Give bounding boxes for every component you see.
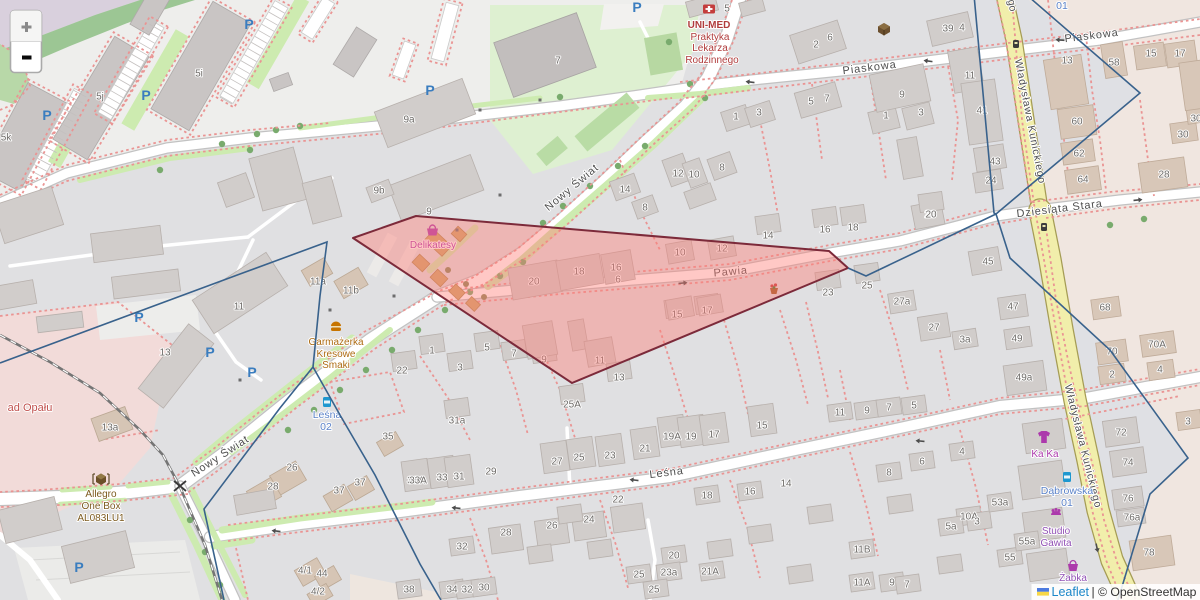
svg-text:25: 25	[861, 281, 873, 292]
svg-text:25: 25	[573, 453, 585, 464]
svg-text:18: 18	[701, 491, 713, 502]
svg-text:Dąbrowska: Dąbrowska	[1041, 485, 1094, 497]
svg-text:34: 34	[446, 585, 458, 596]
svg-text:8: 8	[642, 203, 648, 214]
svg-text:9: 9	[864, 406, 870, 417]
svg-text:5: 5	[911, 401, 917, 412]
svg-text:14: 14	[762, 231, 774, 242]
svg-text:41: 41	[976, 106, 988, 117]
svg-text:37: 37	[354, 478, 366, 489]
svg-text:AL083LU1: AL083LU1	[77, 513, 125, 524]
svg-text:02: 02	[320, 421, 332, 433]
svg-text:55a: 55a	[1019, 537, 1036, 548]
svg-text:28: 28	[500, 528, 512, 539]
svg-text:P: P	[42, 107, 51, 123]
svg-text:13a: 13a	[102, 423, 119, 434]
svg-text:ad Opału: ad Opału	[8, 402, 53, 414]
svg-text:37: 37	[333, 486, 345, 497]
svg-text:1: 1	[733, 112, 739, 123]
svg-text:62: 62	[1073, 149, 1085, 160]
svg-text:3: 3	[974, 517, 980, 528]
svg-text:11B: 11B	[853, 545, 870, 556]
svg-text:49: 49	[1011, 334, 1023, 345]
svg-text:11b: 11b	[343, 286, 359, 297]
svg-text:P: P	[74, 559, 83, 575]
svg-text:15: 15	[1145, 49, 1157, 60]
svg-text:20: 20	[668, 551, 680, 562]
svg-text:33: 33	[436, 473, 448, 484]
svg-text:74: 74	[1122, 458, 1134, 469]
svg-text:18: 18	[847, 223, 859, 234]
svg-text:11: 11	[965, 71, 976, 82]
svg-text:5: 5	[724, 4, 730, 15]
svg-text:P: P	[247, 364, 256, 380]
svg-text:One Box: One Box	[82, 501, 121, 512]
svg-text:23: 23	[822, 288, 834, 299]
svg-text:64: 64	[1077, 175, 1089, 186]
svg-text:13: 13	[1061, 56, 1073, 67]
svg-text:25: 25	[633, 570, 645, 581]
svg-text:Gawita: Gawita	[1040, 538, 1072, 549]
svg-text:26: 26	[546, 521, 558, 532]
svg-text:30: 30	[1177, 130, 1189, 141]
svg-text:22: 22	[612, 495, 624, 506]
svg-text:9: 9	[899, 90, 905, 101]
svg-text:Garmażerka: Garmażerka	[308, 337, 363, 348]
svg-text:78: 78	[1143, 548, 1155, 559]
svg-text:17: 17	[708, 430, 720, 441]
svg-text:| © OpenStreetMap: | © OpenStreetMap	[1092, 585, 1197, 599]
svg-text:35: 35	[382, 432, 394, 443]
svg-text:6: 6	[827, 33, 833, 44]
svg-text:Ka Ka: Ka Ka	[1031, 449, 1059, 460]
svg-text:9: 9	[426, 207, 432, 218]
svg-text:4/1: 4/1	[298, 566, 312, 577]
svg-text:31: 31	[453, 472, 465, 483]
svg-text:9b: 9b	[373, 186, 385, 197]
svg-text:19A: 19A	[663, 432, 681, 443]
svg-text:UNI-MED: UNI-MED	[688, 20, 731, 31]
svg-text:28: 28	[267, 482, 279, 493]
svg-text:14: 14	[619, 185, 631, 196]
svg-text:5i: 5i	[195, 69, 203, 80]
svg-text:47: 47	[1007, 302, 1019, 313]
svg-text:24: 24	[583, 515, 595, 526]
svg-text:27: 27	[928, 323, 940, 334]
svg-text:16: 16	[819, 225, 831, 236]
svg-text:P: P	[141, 87, 150, 103]
svg-text:44: 44	[316, 569, 328, 580]
svg-text:38: 38	[403, 585, 415, 596]
svg-text:3: 3	[1185, 417, 1191, 428]
svg-text:20: 20	[925, 210, 937, 221]
svg-text:2: 2	[1109, 370, 1115, 381]
svg-text:39: 39	[942, 24, 954, 35]
svg-text:Leaflet: Leaflet	[1052, 585, 1090, 599]
svg-text:76: 76	[1122, 494, 1134, 505]
svg-text:01: 01	[1056, 0, 1068, 12]
svg-text:28: 28	[1158, 170, 1170, 181]
svg-text:7: 7	[824, 94, 830, 105]
svg-text:33A: 33A	[409, 476, 427, 487]
svg-text:Allegro: Allegro	[85, 489, 117, 500]
svg-text:Praktyka: Praktyka	[691, 32, 730, 43]
svg-text:P: P	[425, 82, 434, 98]
svg-text:01: 01	[1061, 497, 1073, 509]
svg-text:5j: 5j	[96, 92, 104, 103]
svg-text:45: 45	[982, 257, 994, 268]
svg-text:27a: 27a	[894, 297, 911, 308]
svg-text:4: 4	[959, 447, 965, 458]
svg-text:Smaki: Smaki	[322, 360, 350, 371]
svg-text:4/2: 4/2	[311, 587, 325, 598]
svg-text:1: 1	[883, 111, 889, 122]
svg-text:30: 30	[1190, 114, 1200, 125]
svg-text:76a: 76a	[1124, 513, 1141, 524]
svg-text:P: P	[244, 16, 253, 32]
svg-text:Kresowe: Kresowe	[317, 349, 356, 360]
svg-text:30: 30	[478, 583, 490, 594]
svg-text:21A: 21A	[701, 567, 719, 578]
svg-text:72: 72	[1115, 428, 1127, 439]
svg-text:7: 7	[555, 56, 561, 67]
svg-text:32: 32	[461, 585, 473, 596]
svg-text:8: 8	[886, 468, 892, 479]
svg-text:P: P	[205, 344, 214, 360]
svg-text:4: 4	[1157, 365, 1163, 376]
svg-text:11A: 11A	[853, 578, 870, 589]
svg-text:3: 3	[756, 108, 762, 119]
svg-text:25A: 25A	[563, 400, 581, 411]
svg-text:27: 27	[551, 457, 563, 468]
svg-text:13: 13	[159, 348, 171, 359]
svg-text:P: P	[632, 0, 641, 15]
svg-text:9: 9	[889, 578, 895, 589]
svg-text:9a: 9a	[403, 115, 415, 126]
svg-text:7: 7	[904, 580, 910, 591]
svg-text:5k: 5k	[1, 133, 13, 144]
svg-text:32: 32	[456, 542, 468, 553]
svg-text:3: 3	[918, 108, 924, 119]
svg-text:43: 43	[989, 157, 1001, 168]
svg-text:3: 3	[457, 363, 463, 374]
svg-text:Lekarza: Lekarza	[692, 43, 728, 54]
svg-text:3a: 3a	[959, 335, 971, 346]
svg-text:16: 16	[744, 487, 756, 498]
svg-text:21: 21	[639, 444, 651, 455]
svg-text:5a: 5a	[945, 522, 957, 533]
svg-text:13: 13	[613, 373, 625, 384]
svg-text:19: 19	[685, 432, 697, 443]
svg-text:4: 4	[959, 23, 965, 34]
svg-text:49a: 49a	[1016, 373, 1033, 384]
svg-text:15: 15	[756, 421, 768, 432]
svg-text:12: 12	[672, 169, 684, 180]
svg-text:11: 11	[234, 302, 245, 313]
svg-text:53a: 53a	[992, 498, 1009, 509]
svg-text:Żabka: Żabka	[1059, 571, 1087, 584]
svg-text:1: 1	[429, 346, 435, 357]
svg-text:23: 23	[604, 451, 616, 462]
svg-text:5: 5	[484, 343, 490, 354]
svg-text:7: 7	[511, 349, 517, 360]
svg-text:7: 7	[886, 403, 892, 414]
svg-text:8: 8	[719, 163, 725, 174]
svg-text:68: 68	[1099, 303, 1111, 314]
svg-text:23a: 23a	[661, 568, 678, 579]
svg-text:11: 11	[835, 408, 846, 419]
svg-text:60: 60	[1071, 117, 1083, 128]
svg-text:Rodzinnego: Rodzinnego	[685, 55, 739, 66]
svg-text:2: 2	[813, 40, 819, 51]
svg-text:6: 6	[919, 457, 925, 468]
svg-text:11a: 11a	[310, 277, 326, 288]
svg-text:10: 10	[688, 170, 700, 181]
svg-text:5: 5	[808, 97, 814, 108]
svg-text:14: 14	[780, 479, 792, 490]
svg-text:22: 22	[396, 366, 408, 377]
svg-text:26: 26	[286, 463, 298, 474]
svg-text:70A: 70A	[1148, 340, 1166, 351]
svg-text:31a: 31a	[449, 416, 466, 427]
svg-text:55: 55	[1004, 553, 1016, 564]
svg-text:Studio: Studio	[1042, 526, 1071, 537]
svg-text:29: 29	[485, 467, 497, 478]
svg-text:17: 17	[1174, 49, 1186, 60]
svg-text:25: 25	[648, 585, 660, 596]
